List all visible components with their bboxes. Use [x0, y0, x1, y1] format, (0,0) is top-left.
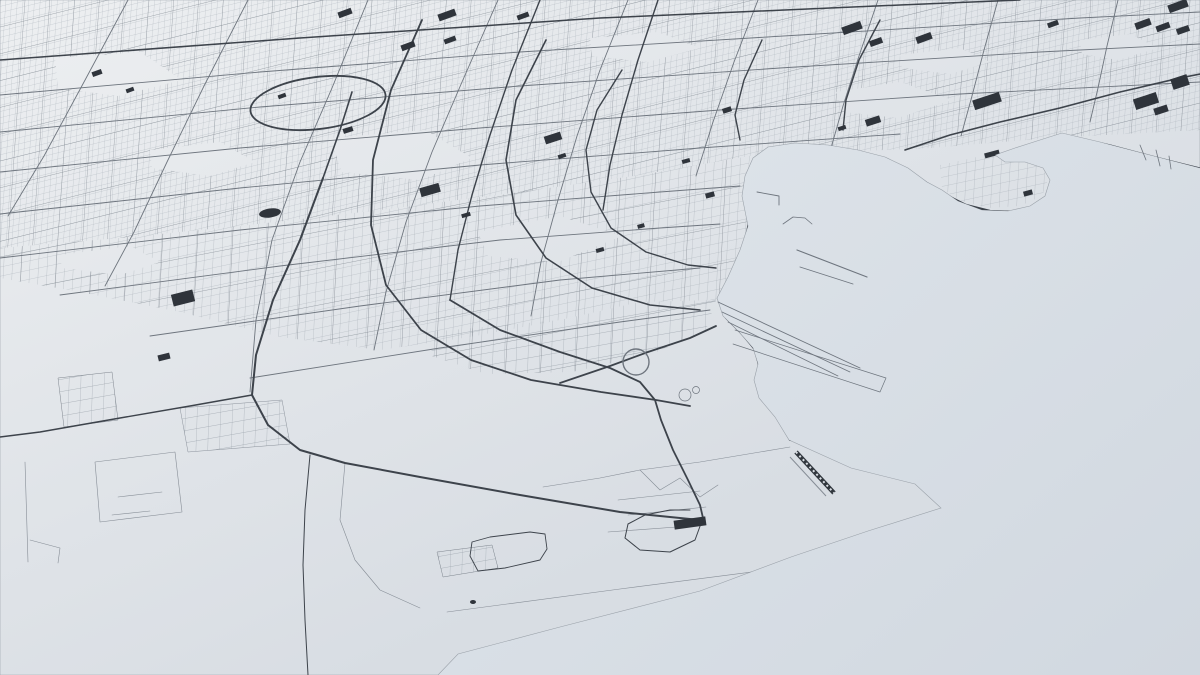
- map-viewport: [0, 0, 1200, 675]
- walled-compound: [58, 372, 118, 427]
- landmark-oval: [470, 600, 476, 604]
- city-3d-map-render: [0, 0, 1200, 675]
- industrial-grid: [180, 400, 290, 452]
- doha-style-map-svg: [0, 0, 1200, 675]
